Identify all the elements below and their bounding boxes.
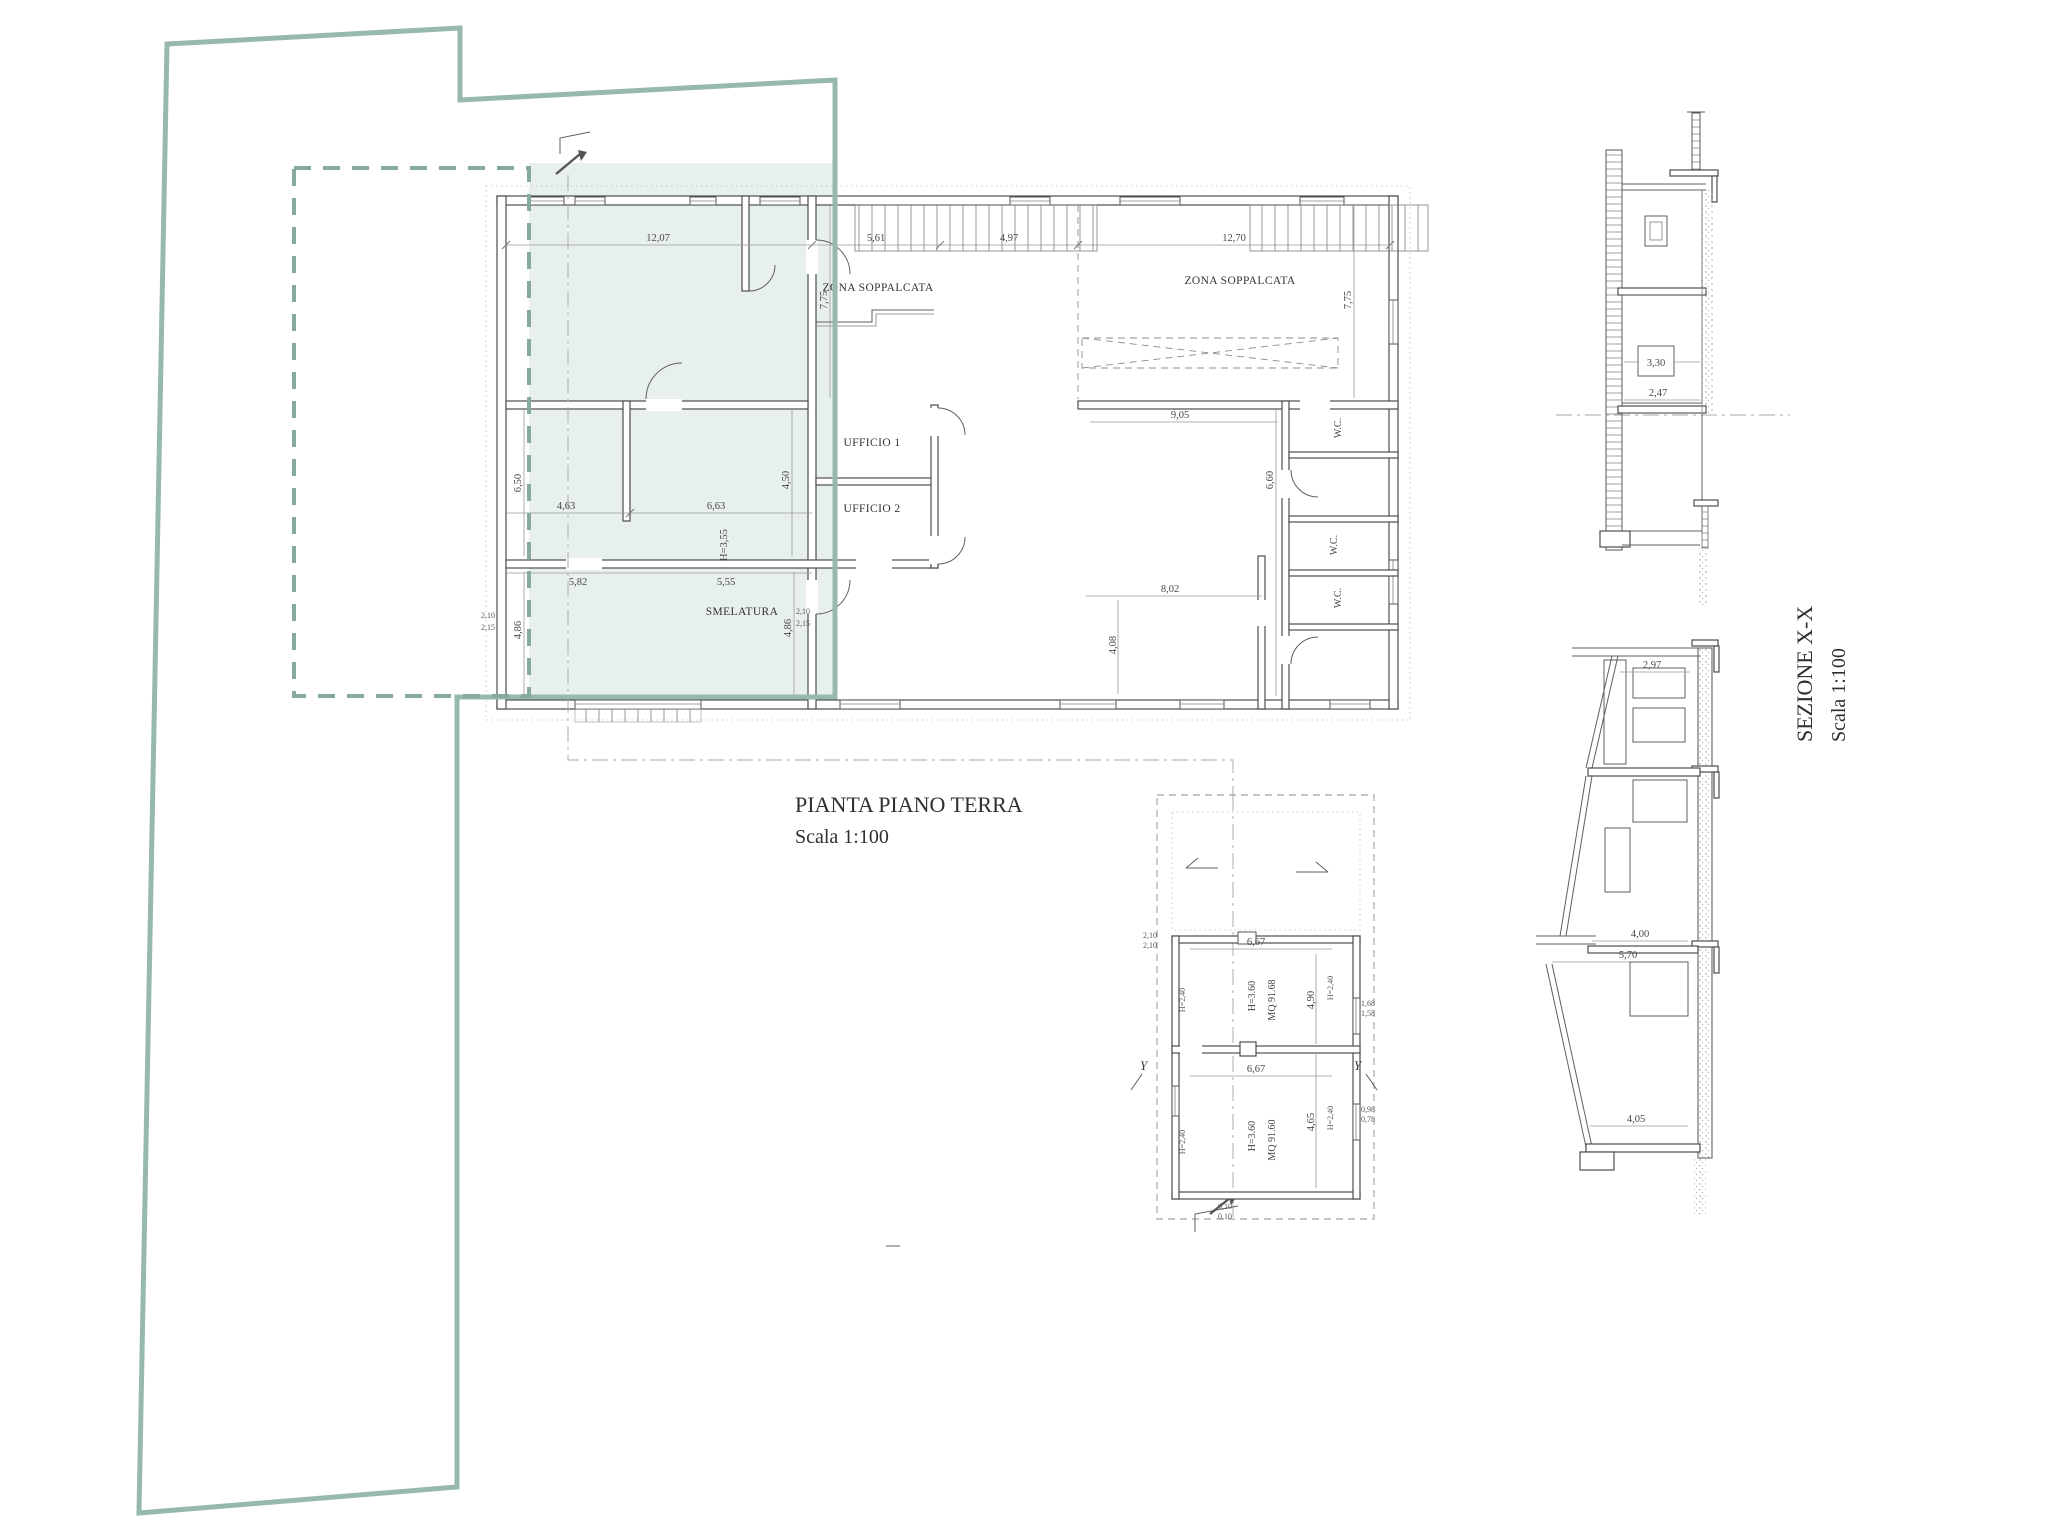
dim-stack-2b: 2,15	[481, 623, 495, 632]
section-marker-y-left: Y	[1140, 1058, 1149, 1073]
room-area-2: MQ 91.60	[1267, 1119, 1278, 1160]
plan-title-block: PIANTA PIANO TERRA Scala 1:100	[795, 792, 1023, 848]
dim-582: 5,82	[569, 577, 587, 588]
dim-h240-bl: H=2,40	[1178, 1130, 1187, 1154]
dim-stack-sp5: 0,98	[1361, 1105, 1375, 1114]
room-height-1: H=3.60	[1247, 981, 1258, 1011]
canopy-arrows	[1186, 858, 1328, 872]
room-label-zona-soppalcata-right: ZONA SOPPALCATA	[1184, 275, 1295, 287]
room-label-ufficio-1: UFFICIO 1	[844, 437, 901, 449]
dim-stack-1a: 2,10	[796, 607, 810, 616]
dim-h240-tr: H=2,40	[1326, 976, 1335, 1000]
dim-h240-br: H=2,40	[1326, 1106, 1335, 1130]
intervention-overlay	[529, 163, 835, 697]
section-scale: Scala 1:100	[1828, 648, 1850, 742]
section-lower: 2,97 4,00 5,70 4,05	[1536, 640, 1719, 1216]
stairs-hatch-right	[1250, 205, 1428, 251]
dim-570: 5,70	[1619, 950, 1637, 961]
dim-650: 6,50	[513, 474, 524, 492]
dim-490: 4,90	[1306, 991, 1317, 1009]
dim-top-3: 4,97	[1000, 233, 1018, 244]
dim-775-right: 7,75	[1343, 291, 1354, 309]
section1-foundation-hatch	[1698, 548, 1708, 606]
dim-stack-sp4: 1,58	[1361, 1009, 1375, 1018]
dim-h240-tl: H=2,40	[1178, 988, 1187, 1012]
dim-top-4: 12,70	[1222, 233, 1246, 244]
dim-465: 4,65	[1306, 1113, 1317, 1131]
detail-plan-walls	[1172, 932, 1360, 1199]
dim-450: 4,50	[781, 471, 792, 489]
plan-title: PIANTA PIANO TERRA	[795, 792, 1023, 817]
canopy-dotted-outline	[1172, 812, 1360, 930]
room-label-wc-1: W.C.	[1333, 418, 1344, 438]
dim-247: 2,47	[1649, 388, 1667, 399]
dim-top-1: 12,07	[646, 233, 670, 244]
room-label-zona-soppalcata-left: ZONA SOPPALCATA	[822, 282, 933, 294]
dim-775-left: 7,75	[819, 291, 830, 309]
section1-chimney	[1692, 113, 1700, 170]
dim-555: 5,55	[717, 577, 735, 588]
dim-408: 4,08	[1108, 636, 1119, 654]
room-label-wc-3: W.C.	[1333, 588, 1344, 608]
room-label-ufficio-2: UFFICIO 2	[844, 503, 901, 515]
dim-stack-sp7: 0,10	[1218, 1202, 1232, 1211]
dim-330: 3,30	[1647, 358, 1665, 369]
section-title: SEZIONE X-X	[1792, 606, 1817, 742]
dim-486-right: 4,86	[783, 619, 794, 637]
dim-top-2: 5,61	[867, 233, 885, 244]
dim-663: 6,63	[707, 501, 725, 512]
dim-667-top: 6,67	[1247, 937, 1265, 948]
drawing-sheet: ZONA SOPPALCATA ZONA SOPPALCATA UFFICIO …	[0, 0, 2048, 1525]
dim-stack-sp6: 0,78	[1361, 1115, 1375, 1124]
dim-stack-sp1: 2,10	[1143, 931, 1157, 940]
section-marker-y-right: Y	[1354, 1058, 1363, 1073]
detail-plan: 6,67 4,90 6,67 4,65 H=2,40 H=2,40 H=2,40…	[1131, 795, 1377, 1221]
room-area-1: MQ 91.68	[1267, 979, 1278, 1020]
dim-463: 4,63	[557, 501, 575, 512]
dim-400: 4,00	[1631, 929, 1649, 940]
room-height-2: H=3.60	[1247, 1121, 1258, 1151]
dim-stack-sp2: 2,10	[1143, 941, 1157, 950]
cad-drawing: ZONA SOPPALCATA ZONA SOPPALCATA UFFICIO …	[0, 0, 2048, 1525]
detail-plan-dashed-boundary	[1157, 795, 1374, 1219]
plan-scale: Scala 1:100	[795, 826, 889, 848]
dim-667-mid: 6,67	[1247, 1064, 1265, 1075]
dim-stack-1b: 2,15	[796, 619, 810, 628]
room-label-smelatura: SMELATURA	[706, 606, 779, 618]
entrance-ramp-hatch	[575, 709, 701, 722]
section-title-block: SEZIONE X-X Scala 1:100	[1792, 606, 1850, 742]
mezzanine-x-brace	[1082, 338, 1338, 368]
dim-stack-sp3: 1,68	[1361, 999, 1375, 1008]
dim-486-left: 4,86	[513, 621, 524, 639]
dim-660: 6,60	[1265, 471, 1276, 489]
stairs-hatch-left	[855, 205, 1097, 251]
section1-left-wall	[1606, 150, 1622, 550]
dim-405: 4,05	[1627, 1114, 1645, 1125]
section1-ground-hatch	[1702, 190, 1714, 415]
dim-stack-sp8: 0,10	[1218, 1212, 1232, 1221]
section2-right-wall	[1698, 648, 1712, 1158]
section2-foundation-hatch	[1694, 1158, 1706, 1216]
dim-905: 9,05	[1171, 410, 1189, 421]
dim-h355: H=3,55	[719, 529, 730, 561]
dim-802: 8,02	[1161, 584, 1179, 595]
section-upper: 3,30 2,47	[1556, 112, 1790, 606]
dim-297: 2,97	[1643, 660, 1661, 671]
room-label-wc-2: W.C.	[1329, 535, 1340, 555]
dim-stack-2a: 2,10	[481, 611, 495, 620]
